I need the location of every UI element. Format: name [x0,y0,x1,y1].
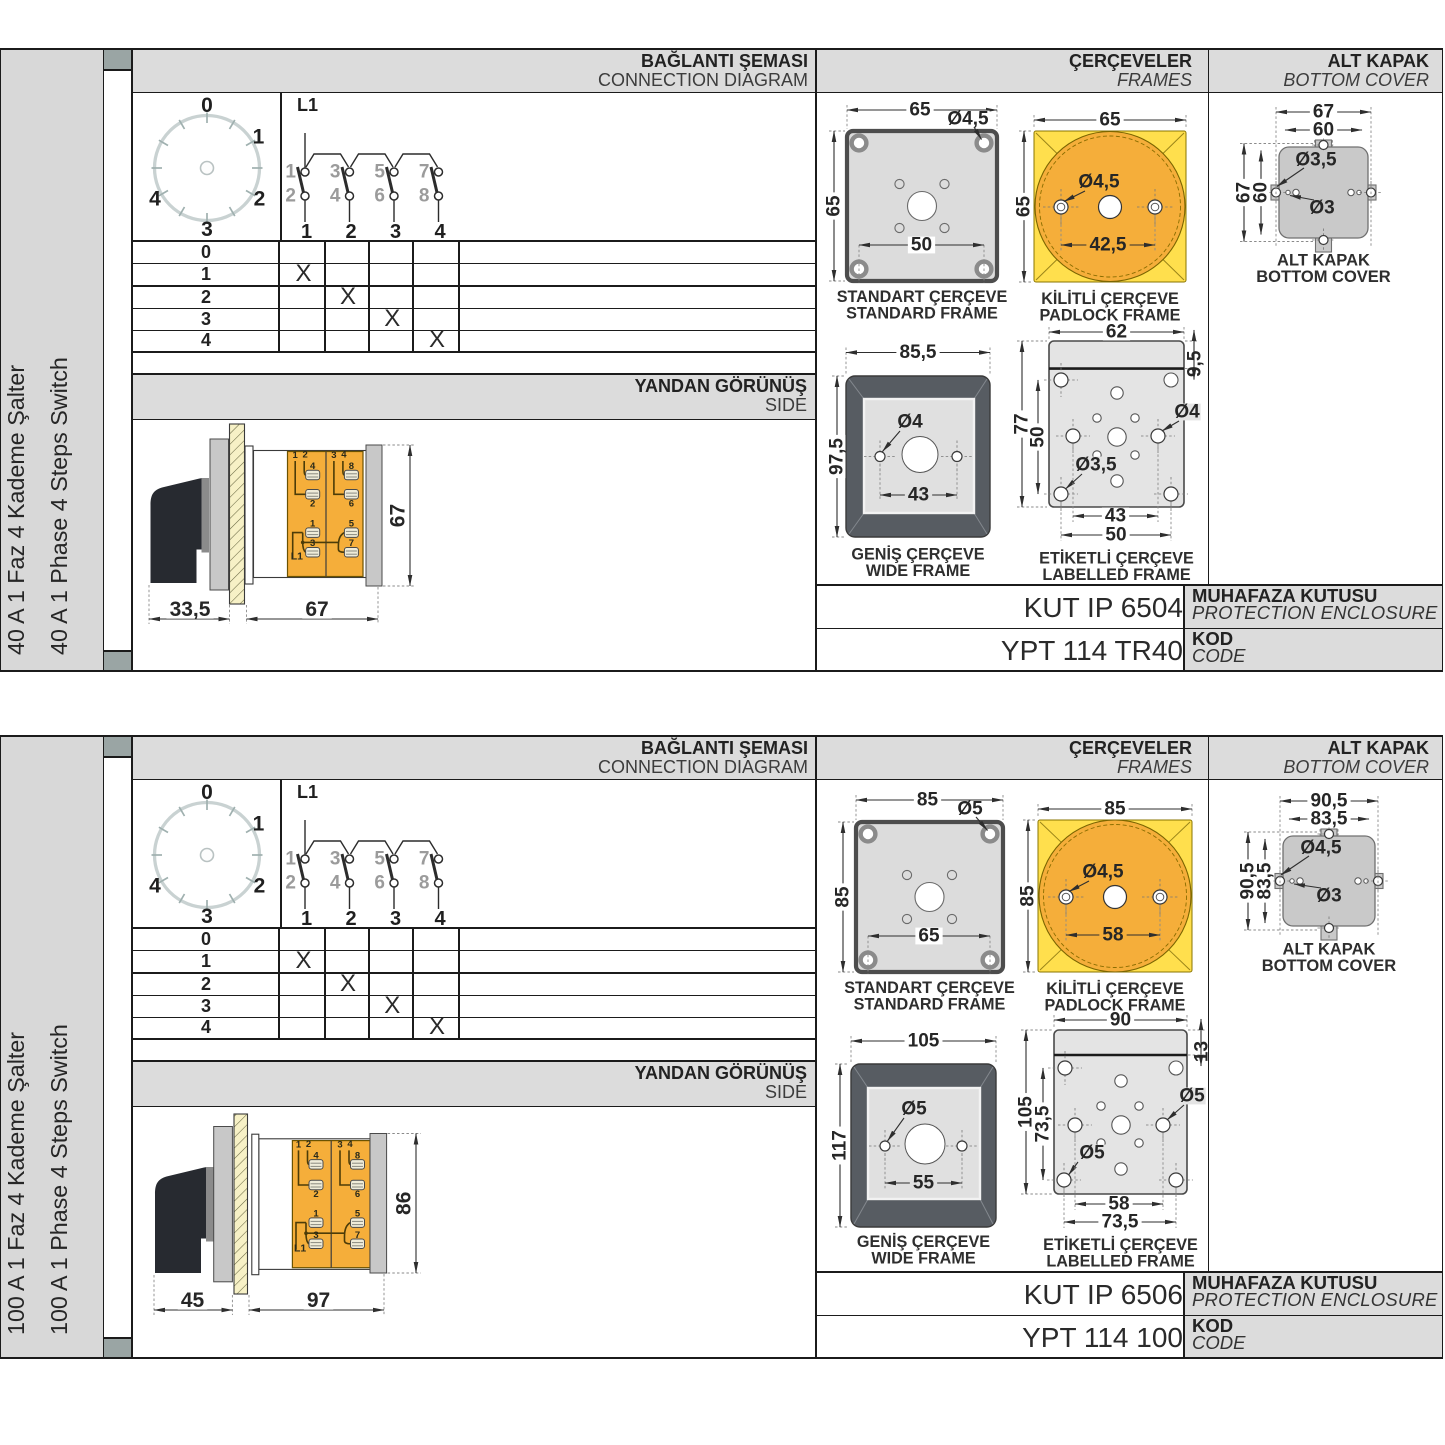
svg-text:6: 6 [355,1189,360,1200]
svg-text:7: 7 [349,538,354,549]
svg-text:67: 67 [305,598,328,621]
svg-text:KİLİTLİ ÇERÇEVE: KİLİTLİ ÇERÇEVE [1046,980,1184,998]
svg-text:0: 0 [201,94,213,117]
svg-text:ETİKETLİ ÇERÇEVE: ETİKETLİ ÇERÇEVE [1039,550,1194,568]
svg-text:4: 4 [330,873,341,894]
svg-text:83,5: 83,5 [1255,862,1276,899]
svg-text:65: 65 [824,195,845,217]
svg-text:55: 55 [913,1173,935,1194]
svg-text:LABELLED FRAME: LABELLED FRAME [1042,566,1191,584]
svg-text:85: 85 [1018,885,1039,907]
svg-text:STANDARD FRAME: STANDARD FRAME [846,305,998,323]
svg-text:8: 8 [349,461,354,472]
svg-text:85,5: 85,5 [900,342,937,363]
svg-text:GENİŞ ÇERÇEVE: GENİŞ ÇERÇEVE [851,546,984,564]
svg-text:5: 5 [374,849,385,870]
svg-text:0: 0 [201,781,213,804]
svg-text:4: 4 [434,221,446,243]
svg-text:5: 5 [355,1209,361,1220]
svg-text:Ø4,5: Ø4,5 [1078,172,1120,193]
svg-text:4: 4 [434,908,446,930]
svg-text:Ø3,5: Ø3,5 [1075,455,1117,476]
svg-text:9,5: 9,5 [1185,350,1206,377]
svg-text:3: 3 [390,908,401,930]
svg-text:3: 3 [330,162,341,183]
svg-text:62: 62 [1106,322,1127,343]
svg-text:5: 5 [374,162,385,183]
svg-text:60: 60 [1313,120,1334,141]
svg-text:Ø5: Ø5 [1179,1086,1205,1107]
svg-text:97: 97 [307,1289,330,1312]
svg-text:2: 2 [313,1189,318,1200]
svg-text:BOTTOM COVER: BOTTOM COVER [1256,268,1391,286]
svg-text:ALT KAPAK: ALT KAPAK [1277,252,1370,270]
svg-text:ALT KAPAK: ALT KAPAK [1283,941,1376,959]
svg-text:117: 117 [830,1130,851,1161]
svg-text:Ø3: Ø3 [1316,886,1341,907]
svg-text:4: 4 [310,461,316,472]
svg-text:1: 1 [253,813,265,836]
svg-text:KİLİTLİ ÇERÇEVE: KİLİTLİ ÇERÇEVE [1041,290,1179,308]
svg-text:2: 2 [254,875,266,898]
svg-text:7: 7 [355,1230,360,1241]
svg-text:L1: L1 [291,551,303,563]
svg-text:Ø4: Ø4 [897,412,923,433]
svg-text:3: 3 [310,538,315,549]
svg-text:5: 5 [349,519,355,530]
svg-text:67: 67 [387,504,410,527]
svg-text:3: 3 [330,849,341,870]
svg-text:3: 3 [337,1139,342,1150]
svg-text:4: 4 [330,186,341,207]
svg-text:65: 65 [1099,110,1121,131]
svg-text:WIDE FRAME: WIDE FRAME [866,562,971,580]
svg-text:90: 90 [1110,1010,1131,1031]
svg-text:1: 1 [296,1139,302,1150]
svg-text:33,5: 33,5 [170,598,211,621]
svg-text:86: 86 [393,1192,416,1215]
svg-text:1: 1 [313,1209,319,1220]
svg-text:4: 4 [313,1150,319,1161]
svg-text:Ø5: Ø5 [1079,1143,1105,1164]
svg-text:4: 4 [149,188,161,211]
svg-text:WIDE FRAME: WIDE FRAME [871,1250,976,1268]
svg-text:3: 3 [201,218,213,241]
svg-text:L1: L1 [294,1242,306,1254]
svg-text:65: 65 [909,100,931,121]
svg-text:6: 6 [349,498,354,509]
svg-text:83,5: 83,5 [1311,809,1348,830]
svg-text:2: 2 [254,188,266,211]
svg-text:8: 8 [419,186,430,207]
svg-text:58: 58 [1102,925,1123,946]
svg-text:4: 4 [341,450,347,461]
svg-text:L1: L1 [297,95,318,115]
svg-text:65: 65 [1014,196,1035,218]
svg-text:85: 85 [833,886,854,908]
svg-text:42,5: 42,5 [1090,235,1127,256]
svg-text:Ø4,5: Ø4,5 [947,109,989,130]
svg-text:STANDARD FRAME: STANDARD FRAME [854,996,1006,1014]
svg-text:13: 13 [1192,1041,1213,1062]
svg-text:Ø4,5: Ø4,5 [1082,862,1124,883]
svg-text:85: 85 [917,790,939,811]
svg-text:3: 3 [313,1230,318,1241]
svg-text:2: 2 [306,1139,311,1150]
svg-text:L1: L1 [297,782,318,802]
svg-text:Ø5: Ø5 [957,799,983,820]
svg-text:ETİKETLİ ÇERÇEVE: ETİKETLİ ÇERÇEVE [1043,1236,1198,1254]
svg-text:Ø4: Ø4 [1174,402,1200,423]
svg-text:50: 50 [1028,426,1049,447]
svg-text:50: 50 [1105,525,1126,546]
svg-text:STANDART ÇERÇEVE: STANDART ÇERÇEVE [844,979,1015,997]
svg-text:BOTTOM COVER: BOTTOM COVER [1262,957,1397,975]
svg-text:3: 3 [201,905,213,928]
svg-text:3: 3 [331,450,336,461]
svg-text:Ø5: Ø5 [901,1099,927,1120]
svg-text:4: 4 [347,1139,353,1150]
svg-text:1: 1 [301,221,312,243]
svg-text:50: 50 [911,235,932,256]
svg-text:43: 43 [908,485,929,506]
svg-text:LABELLED FRAME: LABELLED FRAME [1046,1253,1195,1271]
svg-text:1: 1 [285,162,296,183]
svg-text:7: 7 [419,849,430,870]
svg-text:7: 7 [419,162,430,183]
svg-text:1: 1 [301,908,312,930]
svg-text:Ø3,5: Ø3,5 [1295,150,1337,171]
svg-text:3: 3 [390,221,401,243]
svg-text:85: 85 [1104,799,1126,820]
svg-text:2: 2 [303,450,308,461]
svg-text:6: 6 [374,873,385,894]
svg-text:2: 2 [345,908,356,930]
svg-text:2: 2 [345,221,356,243]
svg-text:43: 43 [1105,506,1126,527]
svg-text:65: 65 [918,926,940,947]
svg-text:1: 1 [253,126,265,149]
svg-text:6: 6 [374,186,385,207]
svg-text:2: 2 [285,873,296,894]
svg-text:STANDART ÇERÇEVE: STANDART ÇERÇEVE [837,288,1008,306]
svg-text:1: 1 [310,519,316,530]
svg-text:73,5: 73,5 [1102,1212,1139,1233]
svg-text:8: 8 [355,1150,360,1161]
svg-text:2: 2 [285,186,296,207]
svg-text:60: 60 [1251,182,1272,203]
svg-text:1: 1 [285,849,296,870]
svg-text:GENİŞ ÇERÇEVE: GENİŞ ÇERÇEVE [857,1233,990,1251]
svg-text:97,5: 97,5 [827,438,848,475]
svg-text:8: 8 [419,873,430,894]
svg-text:105: 105 [908,1031,940,1052]
svg-text:Ø3: Ø3 [1309,198,1334,219]
svg-text:4: 4 [149,875,161,898]
svg-text:1: 1 [293,450,299,461]
svg-text:45: 45 [181,1289,205,1312]
svg-text:2: 2 [310,498,315,509]
svg-text:73,5: 73,5 [1033,1105,1054,1142]
svg-text:Ø4,5: Ø4,5 [1300,838,1342,859]
